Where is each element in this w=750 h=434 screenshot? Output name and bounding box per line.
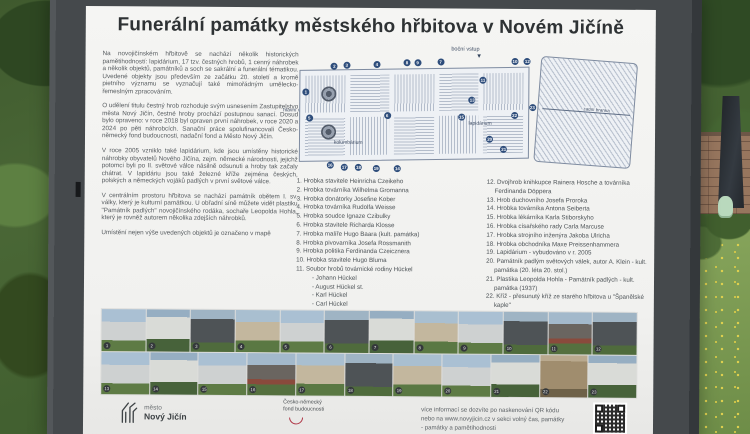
photo-of-information-board: Funerální památky městského hřbitova v N… <box>0 0 750 434</box>
photo-thumb-2: 2 <box>146 309 190 351</box>
photo-thumb-7: 7 <box>370 311 414 353</box>
qr-finder-pattern <box>595 425 603 433</box>
fund-arc-icon <box>289 417 303 424</box>
legend-item: 22. Kříž - přesunutý kříž ze starého hřb… <box>486 293 648 312</box>
photo-number-badge: 17 <box>298 386 305 393</box>
novy-jicin-logo: město Nový Jičín <box>119 400 187 424</box>
info-line-3: - památky a pamětihodnosti <box>421 424 616 434</box>
map-marker-10: 10 <box>511 58 518 65</box>
frame-maker-label <box>76 182 81 197</box>
map-marker-2: 2 <box>331 63 338 70</box>
map-marker-1: 1 <box>302 88 309 95</box>
photo-number-badge: 1 <box>104 342 111 349</box>
map-marker-20: 20 <box>486 136 493 143</box>
photo-thumb-13: 13 <box>101 352 149 394</box>
intro-paragraph-3: V roce 2005 vzniklo také lapidárium, kde… <box>102 147 298 186</box>
photo-thumb-16: 16 <box>247 353 295 395</box>
photo-number-badge: 19 <box>396 387 403 394</box>
city-name: Nový Jičín <box>144 411 187 421</box>
photo-number-badge: 2 <box>148 342 155 349</box>
photo-strip: 123456789101112 1314151617181920212223 <box>100 308 638 399</box>
map-marker-21: 21 <box>500 146 507 153</box>
info-board-frame: Funerální památky městského hřbitova v N… <box>47 0 702 434</box>
photo-thumb-21: 21 <box>491 355 539 397</box>
photo-number-badge: 12 <box>595 346 602 353</box>
photo-thumb-1: 1 <box>102 309 146 351</box>
photo-thumb-17: 17 <box>296 353 344 395</box>
photo-row-2: 1314151617181920212223 <box>101 352 636 398</box>
legend-list-right: 12. Dvojhrob knihkupce Rainera Hosche a … <box>486 179 649 321</box>
photo-number-badge: 5 <box>282 343 289 350</box>
map-marker-3: 3 <box>343 62 350 69</box>
photo-number-badge: 18 <box>347 387 354 394</box>
qr-finder-pattern <box>617 405 625 413</box>
qr-finder-pattern <box>595 405 603 413</box>
map-marker-5: 5 <box>306 115 313 122</box>
map-marker-13: 13 <box>469 97 476 104</box>
photo-row-1: 123456789101112 <box>102 309 637 355</box>
map-numbered-markers: 1234897101256111315202122231617181914 <box>295 51 650 175</box>
info-board-panel: Funerální památky městského hřbitova v N… <box>83 6 656 434</box>
board-footer: město Nový Jičín Česko-německý fond budo… <box>83 394 653 434</box>
photo-number-badge: 13 <box>103 385 110 392</box>
intro-paragraph-4: V centrálním prostoru hřbitova se nacház… <box>101 192 297 224</box>
map-marker-23: 23 <box>529 104 536 111</box>
photo-thumb-11: 11 <box>548 312 592 354</box>
photo-thumb-6: 6 <box>325 311 369 353</box>
photo-thumb-23: 23 <box>589 355 637 397</box>
photo-thumb-15: 15 <box>199 353 247 395</box>
map-marker-17: 17 <box>341 164 348 171</box>
board-title: Funerální památky městského hřbitova v N… <box>86 14 656 40</box>
photo-number-badge: 3 <box>193 343 200 350</box>
photo-number-badge: 23 <box>591 389 598 396</box>
photo-number-badge: 22 <box>542 388 549 395</box>
legend-item: 12. Dvojhrob knihkupce Rainera Hosche a … <box>487 179 649 198</box>
intro-paragraph-1: Na novojičínském hřbitově se nachází něk… <box>102 50 298 97</box>
photo-number-badge: 21 <box>493 388 500 395</box>
intro-paragraph-5: Umístění nejen výše uvedených objektů je… <box>101 229 297 238</box>
intro-paragraph-2: O udělení titulu čestný hrob rozhoduje s… <box>102 102 298 141</box>
map-marker-8: 8 <box>403 60 410 67</box>
photo-thumb-4: 4 <box>236 310 280 352</box>
photo-number-badge: 16 <box>249 386 256 393</box>
map-marker-12: 12 <box>524 58 531 65</box>
photo-number-badge: 9 <box>461 345 468 352</box>
photo-number-badge: 14 <box>152 385 159 392</box>
cemetery-map: boční vstup ▼ hlavní vstup <box>295 51 650 175</box>
fund-line-2: fond budoucnosti <box>283 407 363 415</box>
czech-german-fund-logo: Česko-německý fond budoucnosti <box>283 399 363 424</box>
photo-thumb-18: 18 <box>345 354 393 396</box>
photo-thumb-12: 12 <box>593 313 637 355</box>
intro-text-column: Na novojičínském hřbitově se nachází něk… <box>101 50 298 245</box>
map-marker-6: 6 <box>384 112 391 119</box>
qr-code <box>595 405 625 433</box>
novy-jicin-logo-icon <box>119 400 139 424</box>
photo-number-badge: 15 <box>201 386 208 393</box>
map-marker-19: 19 <box>373 165 380 172</box>
photo-thumb-22: 22 <box>540 355 588 397</box>
photo-number-badge: 11 <box>550 345 557 352</box>
photo-number-badge: 6 <box>327 344 334 351</box>
photo-thumb-10: 10 <box>504 312 548 354</box>
map-marker-4: 4 <box>373 61 380 68</box>
photo-number-badge: 8 <box>416 344 423 351</box>
map-marker-11: 11 <box>479 77 486 84</box>
photo-number-badge: 4 <box>238 343 245 350</box>
map-marker-15: 15 <box>458 114 465 121</box>
photo-thumb-9: 9 <box>459 312 503 354</box>
map-marker-16: 16 <box>327 161 334 168</box>
map-marker-22: 22 <box>511 111 518 118</box>
photo-number-badge: 7 <box>372 344 379 351</box>
map-marker-14: 14 <box>394 166 401 173</box>
photo-thumb-19: 19 <box>394 354 442 396</box>
photo-thumb-5: 5 <box>280 310 324 352</box>
photo-thumb-8: 8 <box>414 311 458 353</box>
map-marker-7: 7 <box>437 59 444 66</box>
photo-number-badge: 10 <box>506 345 513 352</box>
legend-item: 20. Památník padlým světových válek, aut… <box>486 258 648 277</box>
more-info-text: více informací se dozvíte po naskenování… <box>421 405 616 434</box>
legend-list-left: 1. Hrobka stavitele Heinricha Czeikeho2.… <box>296 177 483 310</box>
grave-urn <box>718 196 733 216</box>
photo-number-badge: 20 <box>444 387 451 394</box>
photo-thumb-3: 3 <box>191 310 235 352</box>
legend-item: 21. Plastika Leopolda Hohla - Památník p… <box>486 276 648 295</box>
map-marker-9: 9 <box>414 60 421 67</box>
photo-thumb-20: 20 <box>442 354 490 396</box>
photo-thumb-14: 14 <box>150 352 198 394</box>
novy-jicin-logo-text: město Nový Jičín <box>144 404 187 421</box>
map-marker-18: 18 <box>355 164 362 171</box>
